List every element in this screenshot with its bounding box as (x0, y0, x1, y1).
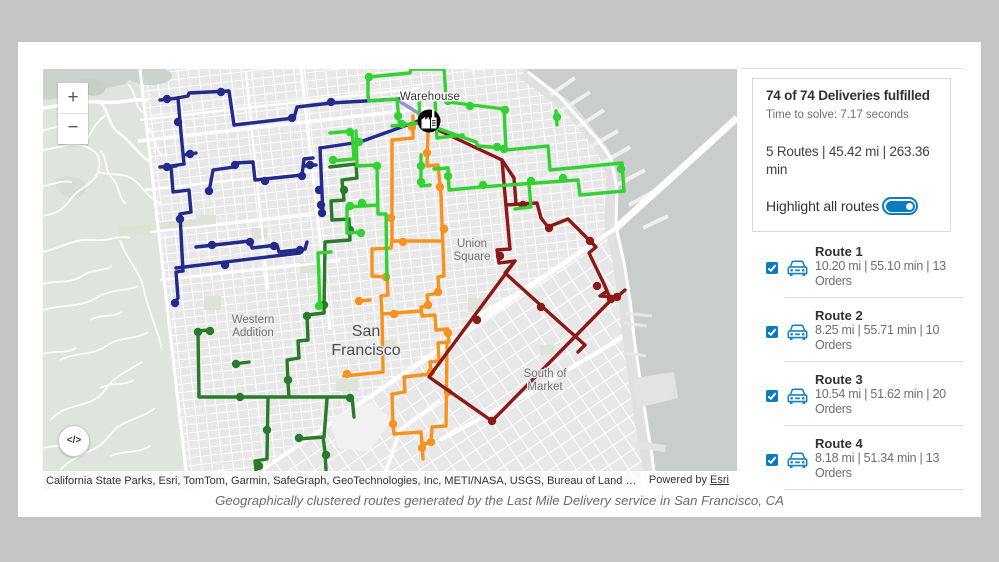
svg-text:Union: Union (457, 238, 487, 250)
svg-text:Francisco: Francisco (331, 342, 400, 359)
svg-text:South of: South of (524, 368, 568, 380)
svg-text:Warehouse: Warehouse (400, 91, 460, 103)
svg-text:Square: Square (453, 251, 490, 263)
svg-text:Market: Market (527, 381, 563, 393)
svg-text:San: San (352, 323, 380, 340)
svg-text:Western: Western (232, 314, 275, 326)
svg-text:Addition: Addition (232, 327, 274, 339)
